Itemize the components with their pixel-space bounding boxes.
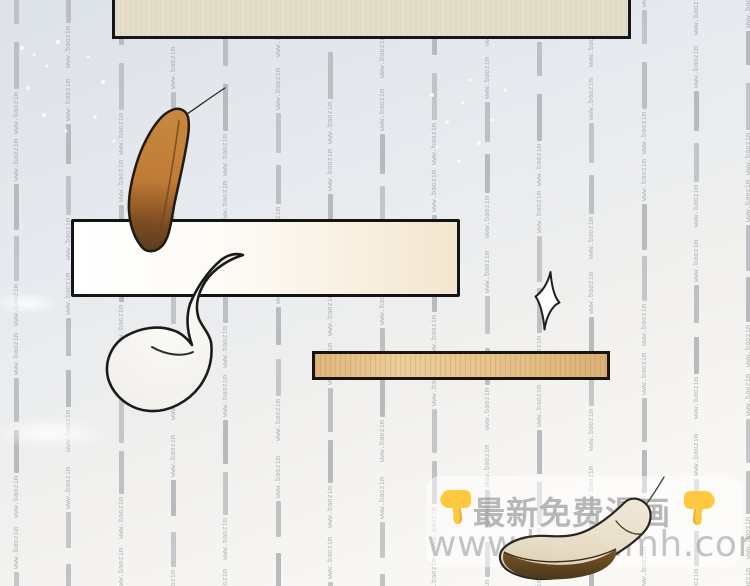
comic-page: www.baozimh.comwww.baozimh.comwww.baozim… xyxy=(0,0,750,586)
watermark-dash xyxy=(276,165,281,204)
watermark-dash xyxy=(694,285,699,323)
watermark-dash xyxy=(589,175,594,214)
watermark-micro-text: www.baozimh.com xyxy=(483,580,493,586)
watermark-dash xyxy=(119,451,124,494)
speech-panel xyxy=(71,219,460,297)
watermark-dash xyxy=(328,388,333,432)
watermark-dash xyxy=(276,553,281,586)
watermark-dash xyxy=(642,62,647,109)
watermark-micro-text: www.baozimh.com xyxy=(483,388,493,430)
watermark-micro-text: www.baozimh.com xyxy=(535,385,545,427)
watermark-dash xyxy=(14,42,19,89)
watermark-dash xyxy=(276,307,281,345)
wood-grain-texture xyxy=(315,354,607,377)
watermark-micro-text: www.baozimh.com xyxy=(221,375,231,417)
watermark-dash xyxy=(642,256,647,301)
watermark-micro-text: www.baozimh.com xyxy=(587,272,597,314)
watermark-micro-text: www.baozimh.com xyxy=(326,537,336,579)
watermark-micro-text: www.baozimh.com xyxy=(640,0,650,7)
watermark-dash xyxy=(171,338,176,375)
watermark-micro-text: www.baozimh.com xyxy=(169,435,179,477)
watermark-micro-text: www.baozimh.com xyxy=(221,326,231,368)
watermark-dash xyxy=(276,359,281,396)
watermark-dash xyxy=(66,124,71,164)
watermark-micro-text: www.baozimh.com xyxy=(640,304,650,346)
watermark-dash xyxy=(276,501,281,537)
watermark-micro-text: www.baozimh.com xyxy=(274,456,284,498)
promo-site-url: www.baozimh.com xyxy=(427,524,750,565)
watermark-micro-text: www.baozimh.com xyxy=(692,240,702,282)
watermark-dash xyxy=(14,236,19,281)
watermark-dash xyxy=(485,154,490,193)
watermark-micro-text: www.baozimh.com xyxy=(692,0,702,35)
watermark-micro-text: www.baozimh.com xyxy=(221,181,231,223)
watermark-micro-text: www.baozimh.com xyxy=(117,497,127,539)
watermark-micro-text: www.baozimh.com xyxy=(692,434,702,476)
watermark-dash xyxy=(694,91,699,131)
watermark-micro-text: www.baozimh.com xyxy=(430,170,440,212)
watermark-dash xyxy=(746,419,750,463)
watermark-micro-text: www.baozimh.com xyxy=(221,569,231,586)
watermark-micro-text: www.baozimh.com xyxy=(117,354,127,396)
watermark-micro-text: www.baozimh.com xyxy=(535,144,545,186)
watermark-micro-text: www.baozimh.com xyxy=(169,378,179,420)
watermark-micro-text: www.baozimh.com xyxy=(169,570,179,586)
watermark-dash xyxy=(223,84,228,131)
watermark-micro-text: www.baozimh.com xyxy=(326,486,336,528)
watermark-dash xyxy=(276,113,281,153)
watermark-dash xyxy=(537,236,542,282)
watermark-micro-text: www.baozimh.com xyxy=(117,160,127,202)
watermark-micro-text: www.baozimh.com xyxy=(169,47,179,89)
watermark-micro-text: www.baozimh.com xyxy=(117,548,127,586)
watermark-dash xyxy=(746,225,750,271)
top-comic-panel xyxy=(112,0,631,39)
watermark-dash xyxy=(66,318,71,356)
watermark-dash xyxy=(66,564,71,586)
watermark-micro-text: www.baozimh.com xyxy=(483,196,493,238)
watermark-micro-text: www.baozimh.com xyxy=(640,112,650,154)
watermark-micro-text: www.baozimh.com xyxy=(587,409,597,451)
watermark-micro-text: www.baozimh.com xyxy=(692,569,702,586)
watermark-dash xyxy=(171,532,176,567)
pointing-down-hand-icon-right xyxy=(681,487,718,526)
watermark-dash xyxy=(746,471,750,514)
watermark-micro-text: www.baozimh.com xyxy=(378,477,388,519)
watermark-micro-text: www.baozimh.com xyxy=(587,78,597,120)
watermark-micro-text: www.baozimh.com xyxy=(535,191,545,233)
watermark-dash xyxy=(328,582,333,586)
watermark-micro-text: www.baozimh.com xyxy=(587,217,597,259)
watermark-dash xyxy=(589,317,594,355)
watermark-dash xyxy=(694,143,699,182)
watermark-micro-text: www.baozimh.com xyxy=(12,527,22,569)
watermark-micro-text: www.baozimh.com xyxy=(326,102,336,144)
watermark-dash xyxy=(380,380,385,417)
watermark-dash xyxy=(171,92,176,132)
watermark-micro-text: www.baozimh.com xyxy=(117,113,127,155)
watermark-dash xyxy=(171,480,176,516)
watermark-micro-text: www.baozimh.com xyxy=(274,68,284,110)
watermark-dash xyxy=(694,337,699,374)
watermark-micro-text: www.baozimh.com xyxy=(378,420,388,462)
watermark-micro-text: www.baozimh.com xyxy=(12,92,22,134)
watermark-dash xyxy=(119,63,124,110)
watermark-micro-text: www.baozimh.com xyxy=(744,325,750,367)
watermark-micro-text: www.baozimh.com xyxy=(744,0,750,28)
watermark-dash xyxy=(119,399,124,443)
watermark-micro-text: www.baozimh.com xyxy=(12,333,22,375)
watermark-micro-text: www.baozimh.com xyxy=(117,305,127,347)
watermark-dash xyxy=(642,10,647,44)
soft-highlight xyxy=(0,416,110,450)
watermark-micro-text: www.baozimh.com xyxy=(744,180,750,222)
watermark-dash xyxy=(66,512,71,548)
watermark-dash xyxy=(589,123,594,163)
watermark-dash xyxy=(642,204,647,250)
watermark-micro-text: www.baozimh.com xyxy=(64,26,74,68)
soft-highlight xyxy=(0,292,62,314)
watermark-micro-text: www.baozimh.com xyxy=(692,185,702,227)
watermark-micro-text: www.baozimh.com xyxy=(744,374,750,416)
watermark-micro-text: www.baozimh.com xyxy=(221,134,231,176)
watermark-dash xyxy=(746,31,750,65)
watermark-micro-text: www.baozimh.com xyxy=(274,399,284,441)
watermark-dash xyxy=(537,42,542,76)
watermark-dash xyxy=(223,420,228,464)
watermark-micro-text: www.baozimh.com xyxy=(483,251,493,293)
watermark-micro-text: www.baozimh.com xyxy=(744,568,750,586)
watermark-micro-text: www.baozimh.com xyxy=(430,123,440,165)
watermark-dash xyxy=(485,296,490,334)
watermark-micro-text: www.baozimh.com xyxy=(640,159,650,201)
watermark-dash xyxy=(328,52,333,99)
watermark-dash xyxy=(485,102,490,142)
watermark-micro-text: www.baozimh.com xyxy=(535,579,545,586)
watermark-dash xyxy=(66,370,71,407)
watermark-dash xyxy=(537,430,542,474)
watermark-dash xyxy=(14,184,19,230)
watermark-dash xyxy=(380,522,385,558)
wood-bar-panel xyxy=(312,351,610,380)
watermark-micro-text: www.baozimh.com xyxy=(326,294,336,336)
watermark-dash xyxy=(537,94,542,141)
watermark-micro-text: www.baozimh.com xyxy=(326,149,336,191)
watermark-micro-text: www.baozimh.com xyxy=(378,89,388,131)
watermark-micro-text: www.baozimh.com xyxy=(12,139,22,181)
watermark-dash xyxy=(223,472,228,515)
watermark-dash xyxy=(171,144,176,183)
watermark-dash xyxy=(328,440,333,483)
watermark-micro-text: www.baozimh.com xyxy=(744,133,750,175)
feather-whisker-line xyxy=(187,88,225,114)
watermark-dash xyxy=(642,398,647,442)
watermark-dash xyxy=(746,277,750,322)
watermark-micro-text: www.baozimh.com xyxy=(64,79,74,121)
watermark-micro-text: www.baozimh.com xyxy=(12,476,22,518)
watermark-dash xyxy=(66,0,71,23)
watermark-dash xyxy=(432,409,437,453)
watermark-micro-text: www.baozimh.com xyxy=(692,377,702,419)
watermark-micro-text: www.baozimh.com xyxy=(221,518,231,560)
watermark-micro-text: www.baozimh.com xyxy=(378,36,388,78)
pointing-down-hand-icon-left xyxy=(437,486,474,525)
watermark-dash xyxy=(14,0,19,24)
watermark-dash xyxy=(746,83,750,130)
watermark-dash xyxy=(380,574,385,586)
watermark-dash xyxy=(14,572,19,586)
watermark-dash xyxy=(380,134,385,174)
watermark-dash xyxy=(66,176,71,215)
watermark-micro-text: www.baozimh.com xyxy=(483,57,493,99)
watermark-micro-text: www.baozimh.com xyxy=(64,467,74,509)
watermark-micro-text: www.baozimh.com xyxy=(692,46,702,88)
watermark-dash xyxy=(537,288,542,333)
watermark-dash xyxy=(432,73,437,120)
watermark-micro-text: www.baozimh.com xyxy=(640,353,650,395)
